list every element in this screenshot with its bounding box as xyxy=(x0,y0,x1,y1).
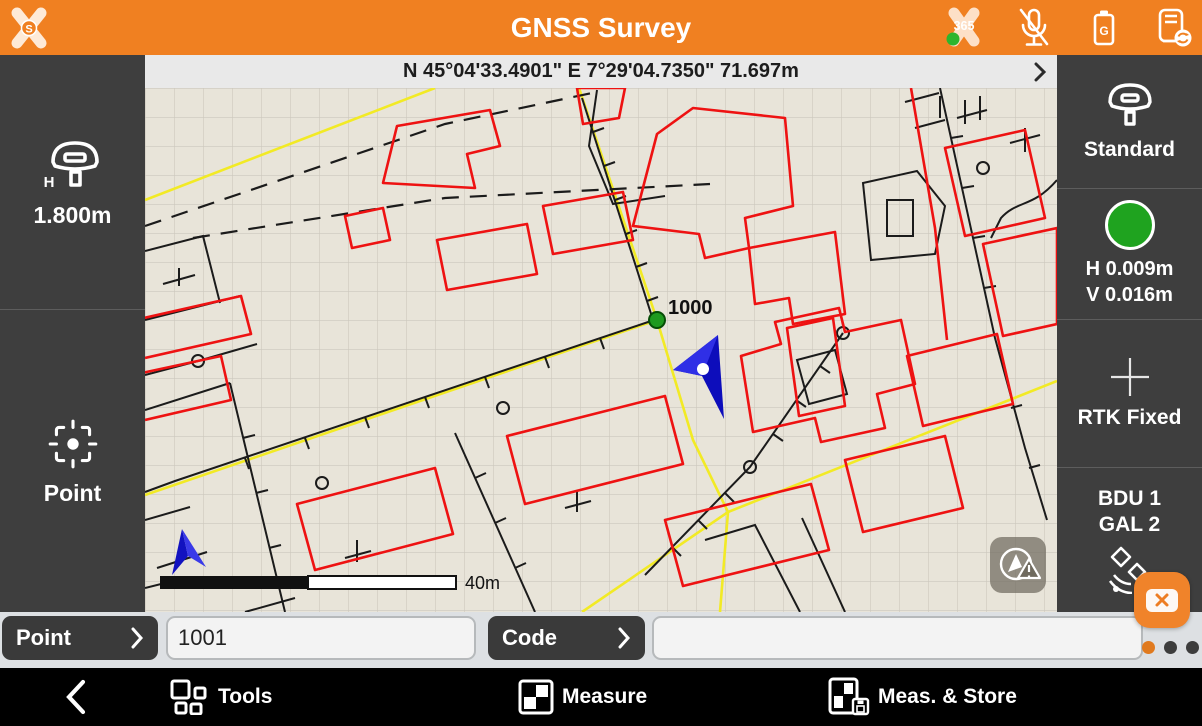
xpad365-status-icon[interactable]: 365 xyxy=(942,5,986,51)
antenna-height-button[interactable]: H 1.800m xyxy=(0,55,145,310)
back-button[interactable] xyxy=(62,668,88,726)
battery-icon[interactable]: G xyxy=(1082,5,1126,51)
antenna-height-value: 1.800m xyxy=(33,201,111,230)
svg-text:G: G xyxy=(1099,24,1108,38)
code-input[interactable] xyxy=(652,616,1143,660)
point-button-label: Point xyxy=(16,625,71,651)
quick-input-row: Point Code xyxy=(0,612,1202,668)
point-name-input[interactable] xyxy=(166,616,476,660)
accuracy-button[interactable]: H 0.009m V 0.016m xyxy=(1057,189,1202,320)
tools-label: Tools xyxy=(218,685,272,709)
app-header: S GNSS Survey 365 xyxy=(0,0,1202,55)
point-crosshair-icon xyxy=(44,415,102,473)
code-button[interactable]: Code xyxy=(488,616,645,660)
svg-text:H: H xyxy=(43,174,54,191)
rtk-crosshair-icon xyxy=(1108,355,1152,399)
receiver-sync-icon[interactable] xyxy=(1152,5,1196,51)
measure-store-label: Meas. & Store xyxy=(878,685,1017,709)
measure-store-icon xyxy=(828,677,870,717)
tools-button[interactable]: Tools xyxy=(170,668,272,726)
coordinate-bar[interactable]: N 45°04'33.4901" E 7°29'04.7350" 71.697m xyxy=(145,55,1057,89)
left-sidebar: H 1.800m Point xyxy=(0,55,145,612)
chevron-right-icon xyxy=(1033,62,1047,82)
tools-icon xyxy=(170,679,210,715)
v-accuracy: V 0.016m xyxy=(1086,284,1173,306)
close-icon xyxy=(1146,589,1178,612)
right-sidebar: Standard H 0.009m V 0.016m RTK Fixed BDU… xyxy=(1057,55,1202,612)
page-dot-1[interactable] xyxy=(1142,641,1155,654)
page-indicator[interactable] xyxy=(1142,641,1199,654)
svg-text:365: 365 xyxy=(954,19,975,33)
current-coordinates: N 45°04'33.4901" E 7°29'04.7350" 71.697m xyxy=(403,60,799,83)
measure-button[interactable]: Measure xyxy=(518,668,647,726)
bottom-toolbar: Tools Measure Meas. & Store xyxy=(0,668,1202,726)
chevron-right-icon xyxy=(130,627,144,649)
svg-text:1000: 1000 xyxy=(668,297,713,319)
svg-text:40m: 40m xyxy=(465,573,500,593)
fix-status-button[interactable]: RTK Fixed xyxy=(1057,320,1202,468)
chevron-left-icon xyxy=(62,677,88,717)
antenna-icon xyxy=(1097,79,1163,131)
cad-map: 1000 40m xyxy=(145,88,1057,612)
point-survey-button[interactable]: Point xyxy=(0,310,145,612)
point-label: Point xyxy=(44,479,102,508)
microphone-muted-icon[interactable] xyxy=(1012,5,1056,51)
page-dot-2[interactable] xyxy=(1164,641,1177,654)
accuracy-status-dot xyxy=(1105,200,1155,250)
code-button-label: Code xyxy=(502,625,557,651)
svg-text:S: S xyxy=(25,24,32,36)
page-dot-3[interactable] xyxy=(1186,641,1199,654)
antenna-profile-button[interactable]: Standard xyxy=(1057,55,1202,189)
point-name-button[interactable]: Point xyxy=(2,616,158,660)
antenna-profile-label: Standard xyxy=(1084,137,1175,163)
xpad-logo-icon: S xyxy=(8,7,50,49)
compass-button[interactable] xyxy=(990,537,1046,593)
close-panel-fab[interactable] xyxy=(1134,572,1190,628)
sat-count-2: GAL 2 xyxy=(1099,513,1160,536)
sat-count-1: BDU 1 xyxy=(1098,487,1161,510)
measure-label: Measure xyxy=(562,685,647,709)
chevron-right-icon xyxy=(617,627,631,649)
measure-icon xyxy=(518,679,554,715)
h-accuracy: H 0.009m xyxy=(1086,258,1174,280)
antenna-height-icon: H xyxy=(35,135,111,195)
measure-store-button[interactable]: Meas. & Store xyxy=(828,668,1017,726)
map-view[interactable]: 1000 40m xyxy=(145,88,1057,612)
fix-status-label: RTK Fixed xyxy=(1078,405,1182,431)
